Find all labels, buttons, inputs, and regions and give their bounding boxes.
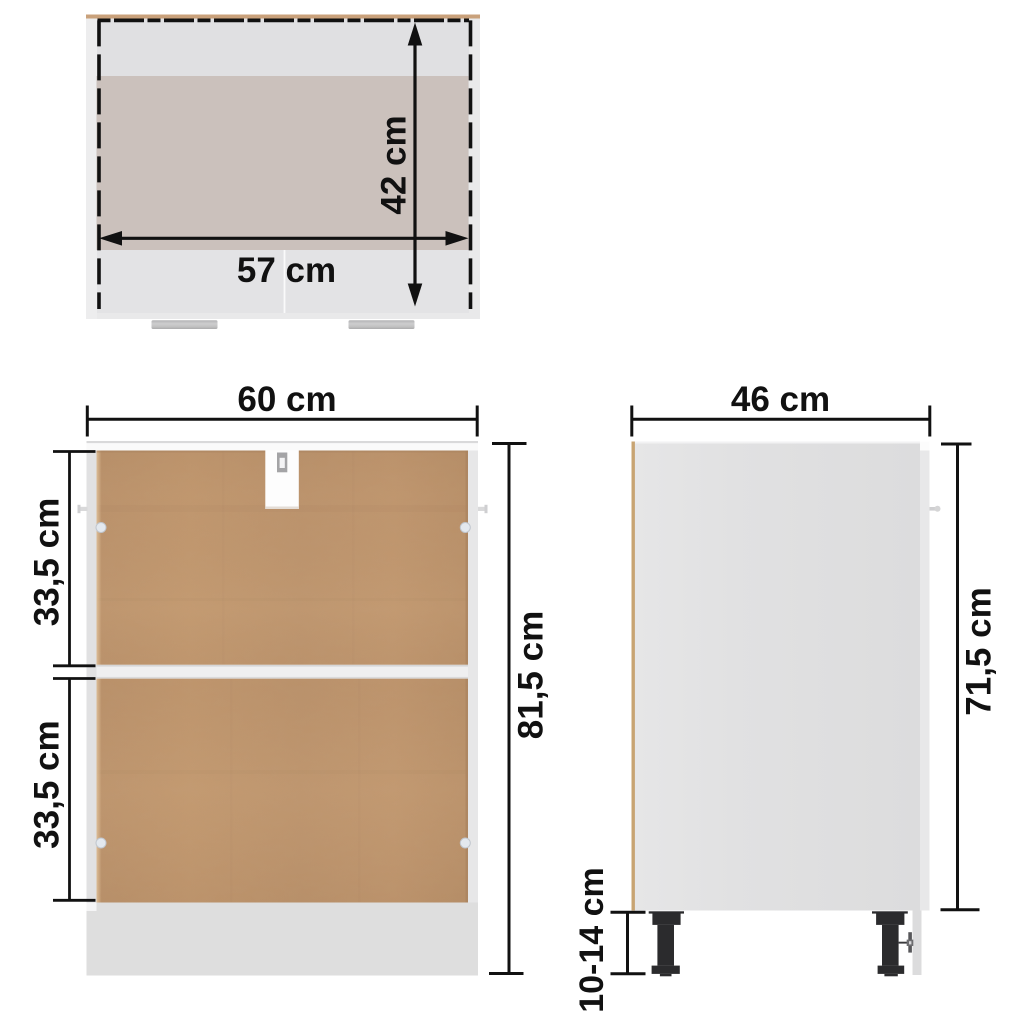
svg-text:71,5 cm: 71,5 cm xyxy=(959,587,998,715)
svg-text:42 cm: 42 cm xyxy=(375,115,414,214)
svg-text:46 cm: 46 cm xyxy=(731,380,830,419)
svg-text:81,5 cm: 81,5 cm xyxy=(511,611,550,739)
svg-text:57 cm: 57 cm xyxy=(237,251,336,290)
svg-text:33,5 cm: 33,5 cm xyxy=(27,498,66,626)
svg-text:10-14 cm: 10-14 cm xyxy=(573,867,611,1013)
svg-text:33,5 cm: 33,5 cm xyxy=(27,720,66,848)
svg-text:60 cm: 60 cm xyxy=(237,380,336,419)
